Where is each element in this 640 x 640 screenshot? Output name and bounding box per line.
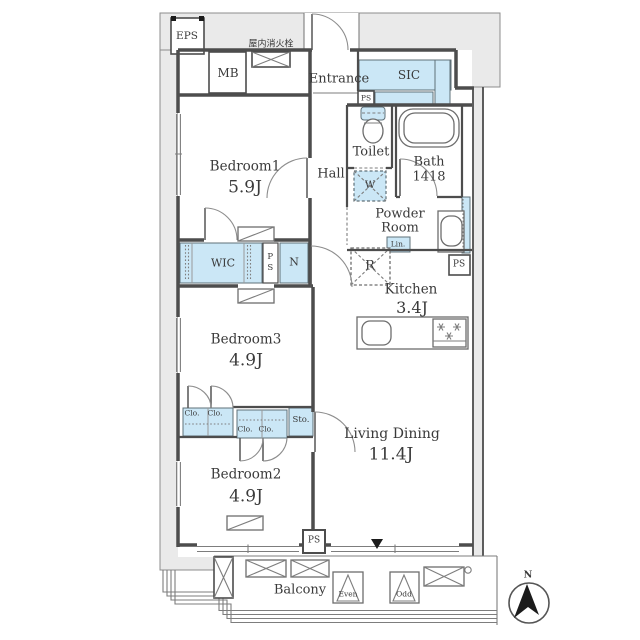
fridge-label: R bbox=[365, 260, 375, 273]
stove-icon bbox=[433, 319, 466, 347]
bedroom2-label: Bedroom2 bbox=[211, 468, 282, 482]
ps-entrance-label: PS bbox=[361, 94, 371, 102]
powder-room-label-2: Room bbox=[381, 222, 419, 235]
compass-north-label: N bbox=[524, 570, 533, 580]
wic-label: WIC bbox=[211, 258, 235, 269]
sliding-door-3 bbox=[227, 516, 263, 530]
sic-label: SIC bbox=[398, 69, 420, 81]
linen-label: Lin. bbox=[391, 240, 406, 248]
toilet-icon bbox=[361, 107, 385, 143]
powder-room-label-1: Powder bbox=[375, 208, 424, 221]
closet-label-1: Clo. bbox=[185, 409, 200, 417]
ps-kitchen-label: PS bbox=[453, 261, 465, 270]
balcony-partition bbox=[214, 557, 233, 598]
balcony-hatch-3 bbox=[424, 567, 471, 586]
living-dining-label: Living Dining bbox=[344, 427, 440, 441]
closet-label-3: Clo. bbox=[238, 425, 253, 433]
compass-icon bbox=[509, 583, 549, 623]
balcony-label: Balcony bbox=[274, 584, 326, 597]
living-dining-area-label: 11.4J bbox=[369, 447, 414, 464]
bedroom3-label: Bedroom3 bbox=[211, 333, 282, 347]
eps-label: EPS bbox=[176, 31, 198, 42]
washer-label: W bbox=[365, 181, 375, 191]
evac-hatch-odd bbox=[390, 572, 419, 603]
nando-label: N bbox=[289, 257, 299, 268]
balcony-hatch-1 bbox=[246, 560, 286, 577]
fire-hydrant-label: 屋内消火栓 bbox=[248, 41, 293, 50]
bath-size-label: 1418 bbox=[412, 171, 445, 184]
kitchen-label: Kitchen bbox=[385, 283, 438, 297]
bedroom1-label: Bedroom1 bbox=[210, 160, 281, 174]
hatch-even-label: Even bbox=[339, 590, 358, 598]
mb-label: MB bbox=[217, 67, 238, 79]
ps-wic-label: PS bbox=[266, 252, 275, 274]
bedroom3-area-label: 4.9J bbox=[229, 353, 263, 370]
closet-label-4: Clo. bbox=[259, 425, 274, 433]
hatch-odd-label: Odd bbox=[396, 590, 412, 598]
sliding-door-1 bbox=[238, 227, 274, 241]
bath-label: Bath bbox=[414, 156, 445, 169]
balcony-hatch-2 bbox=[291, 560, 329, 577]
fire-hydrant-box bbox=[252, 52, 290, 67]
bathtub-icon bbox=[399, 109, 459, 147]
sink-icon bbox=[362, 321, 391, 345]
entrance-label: Entrance bbox=[309, 73, 369, 86]
floor-plan: EPS MB 屋内消火栓 Entrance SIC PS Toilet Bath… bbox=[0, 0, 640, 640]
bedroom1-area-label: 5.9J bbox=[228, 180, 262, 197]
ps-bottom-label: PS bbox=[308, 537, 320, 546]
kitchen-counter bbox=[357, 317, 468, 349]
toilet-label: Toilet bbox=[353, 146, 390, 159]
evac-hatch-even bbox=[333, 572, 363, 603]
sto-label: Sto. bbox=[293, 416, 310, 425]
hall-label: Hall bbox=[317, 168, 344, 181]
kitchen-area-label: 3.4J bbox=[396, 300, 428, 316]
sliding-door-2 bbox=[238, 289, 274, 303]
closet-label-2: Clo. bbox=[208, 409, 223, 417]
bedroom2-area-label: 4.9J bbox=[229, 489, 263, 506]
